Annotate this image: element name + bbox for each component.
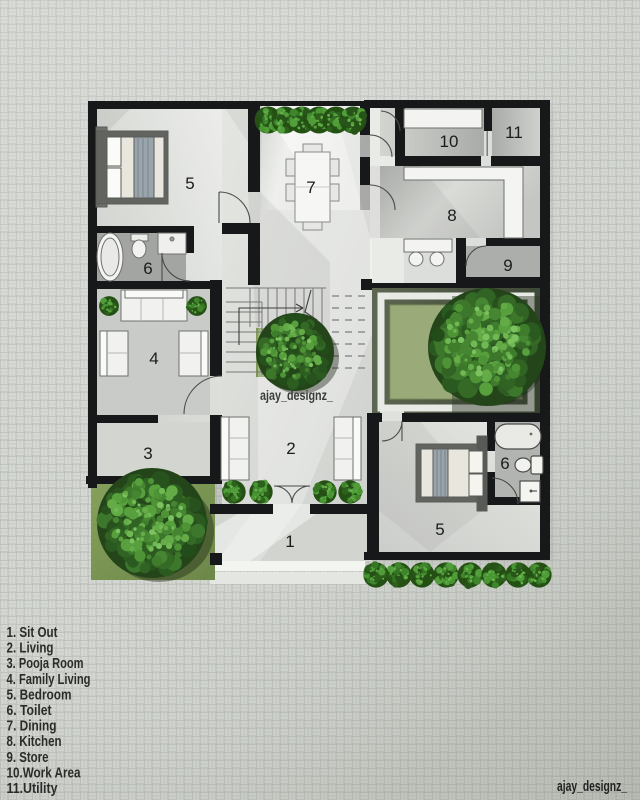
svg-text:8. Kitchen: 8. Kitchen [7, 733, 62, 750]
svg-text:ajay_designz_: ajay_designz_ [260, 388, 333, 403]
svg-text:3: 3 [143, 444, 152, 463]
svg-text:10: 10 [440, 132, 459, 151]
svg-text:9: 9 [503, 256, 512, 275]
svg-text:9. Store: 9. Store [7, 749, 49, 766]
svg-text:11: 11 [505, 123, 523, 142]
svg-text:ajay_designz_: ajay_designz_ [557, 779, 628, 795]
svg-text:1. Sit Out: 1. Sit Out [7, 624, 58, 641]
svg-text:8: 8 [447, 206, 456, 225]
svg-text:2. Living: 2. Living [7, 640, 54, 657]
svg-text:4: 4 [149, 349, 158, 368]
svg-text:5. Bedroom: 5. Bedroom [7, 686, 72, 703]
svg-text:10.Work Area: 10.Work Area [7, 764, 82, 781]
svg-text:11.Utility: 11.Utility [7, 780, 59, 797]
svg-text:6: 6 [500, 454, 509, 473]
svg-text:4. Family Living: 4. Family Living [7, 671, 91, 688]
svg-text:7: 7 [306, 178, 315, 197]
svg-text:1: 1 [285, 532, 294, 551]
svg-text:3. Pooja Room: 3. Pooja Room [7, 655, 84, 672]
svg-text:7. Dining: 7. Dining [7, 718, 57, 735]
svg-text:6. Toilet: 6. Toilet [7, 702, 52, 719]
svg-text:5: 5 [435, 520, 444, 539]
svg-text:6: 6 [143, 259, 152, 278]
svg-text:2: 2 [286, 439, 295, 458]
svg-text:5: 5 [185, 174, 194, 193]
